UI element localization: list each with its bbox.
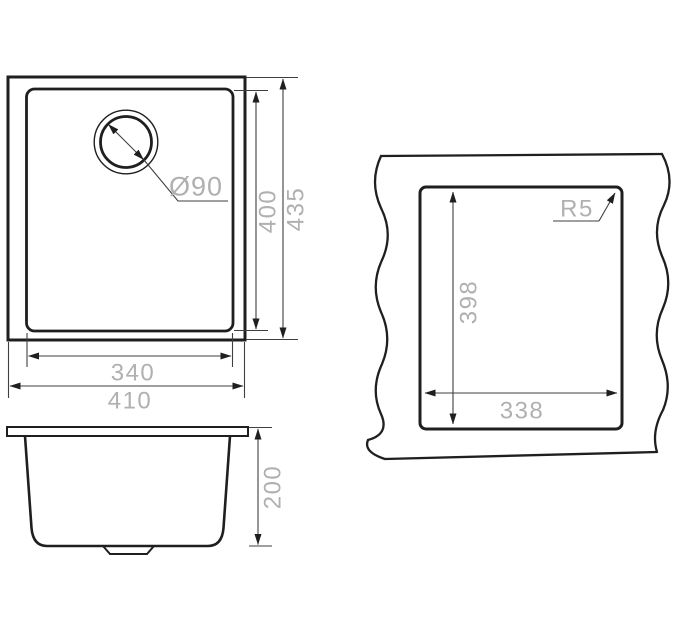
bowl-height-dimension-label: 400 — [255, 189, 282, 234]
bowl-width-dimension-label: 340 — [111, 360, 156, 387]
top-view: Ø90 400 435 340 410 — [8, 77, 310, 415]
overall-height-dimension-label: 435 — [283, 187, 310, 232]
cutout-view: R5 398 338 — [367, 154, 669, 459]
cutout-width-dimension-label: 338 — [500, 398, 545, 425]
sink-rim-flange — [7, 427, 248, 436]
sink-technical-drawing: Ø90 400 435 340 410 200 — [0, 0, 680, 630]
depth-dimension-label: 200 — [260, 465, 287, 510]
countertop-top-edge — [381, 154, 662, 156]
countertop-bottom-edge — [385, 452, 657, 459]
side-view: 200 — [7, 427, 287, 554]
countertop-break-line-left — [367, 156, 388, 459]
drawing-svg: Ø90 400 435 340 410 200 — [0, 0, 680, 630]
sink-bowl-edge — [27, 89, 234, 331]
drain-diameter-label: Ø90 — [169, 172, 223, 202]
sink-bowl-body — [25, 436, 230, 546]
cutout-height-dimension-label: 398 — [456, 280, 483, 325]
corner-radius-arrow — [599, 193, 615, 221]
drain-diameter-arrow — [109, 125, 144, 160]
overall-width-dimension-label: 410 — [108, 388, 153, 415]
countertop-break-line-right — [655, 154, 670, 452]
corner-radius-label: R5 — [560, 196, 594, 223]
